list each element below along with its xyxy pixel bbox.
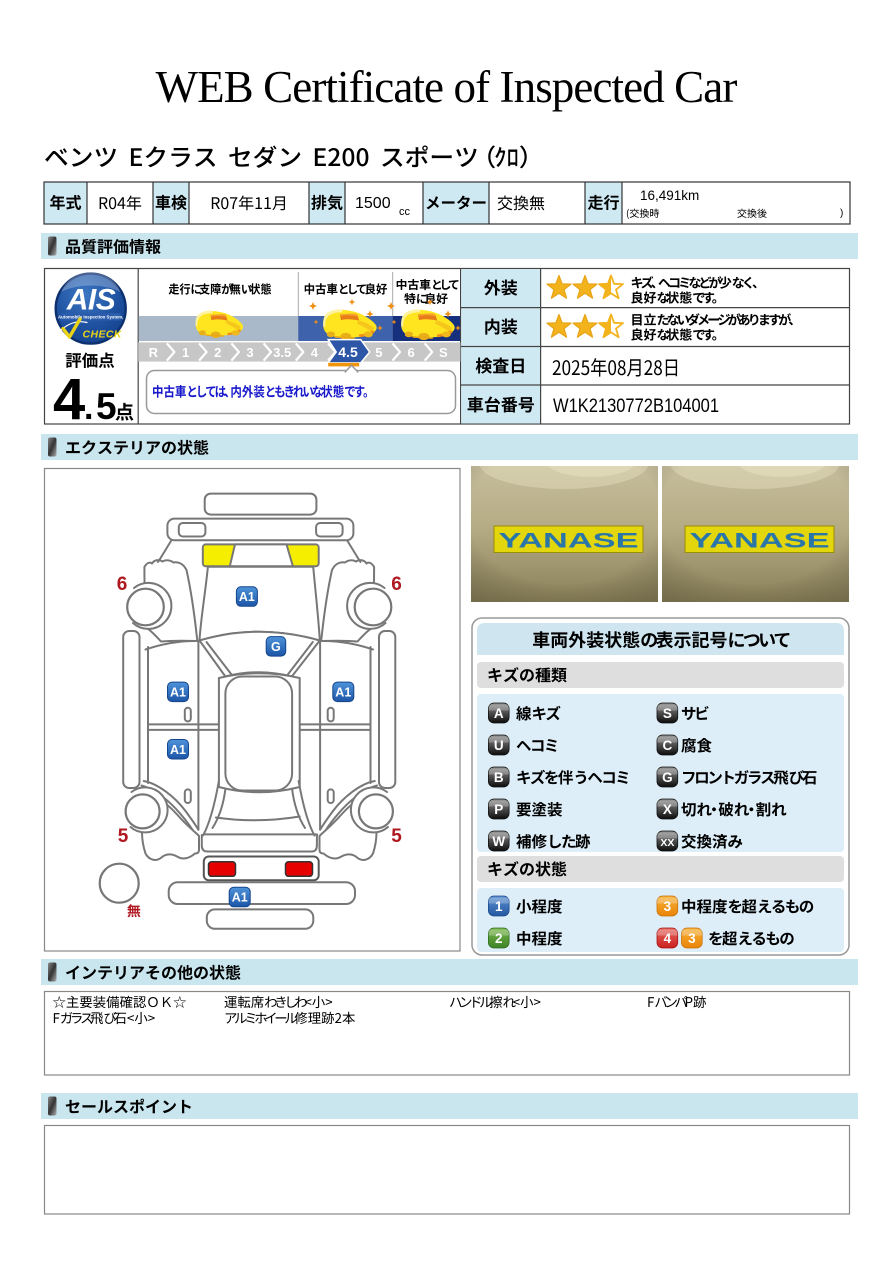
svg-text:XX: XX	[660, 837, 674, 849]
svg-text:5: 5	[391, 826, 402, 847]
svg-text:2: 2	[495, 931, 503, 946]
svg-text:Automobile Inspection System,: Automobile Inspection System,	[58, 315, 123, 320]
svg-text:16,491km: 16,491km	[640, 188, 699, 203]
svg-text:WEB Certificate of Inspected C: WEB Certificate of Inspected Car	[156, 62, 738, 112]
svg-text:cc: cc	[399, 206, 411, 218]
svg-text:YANASE: YANASE	[499, 530, 639, 553]
svg-text:A1: A1	[170, 685, 186, 699]
svg-text:1: 1	[182, 345, 189, 360]
svg-text:6: 6	[407, 345, 414, 360]
svg-text:A1: A1	[232, 891, 248, 905]
svg-text:6: 6	[117, 574, 128, 595]
svg-text:G: G	[662, 770, 673, 785]
svg-text:A1: A1	[170, 743, 186, 757]
svg-text:3.5: 3.5	[273, 345, 291, 360]
svg-text:5: 5	[118, 826, 129, 847]
svg-text:4: 4	[664, 931, 672, 946]
svg-text:3: 3	[664, 899, 672, 914]
svg-text:W: W	[492, 834, 505, 849]
svg-text:S: S	[439, 345, 448, 360]
svg-text:4.5: 4.5	[338, 344, 358, 360]
svg-text:5: 5	[375, 345, 382, 360]
svg-text:B: B	[494, 770, 504, 785]
svg-text:AIS: AIS	[66, 284, 116, 317]
svg-text:3: 3	[688, 931, 696, 946]
svg-text:.: .	[84, 389, 93, 427]
svg-text:4: 4	[53, 367, 85, 432]
svg-text:A: A	[494, 706, 504, 721]
svg-text:W1K2130772B104001: W1K2130772B104001	[553, 396, 719, 417]
svg-text:S: S	[663, 706, 672, 721]
svg-text:4: 4	[311, 345, 319, 360]
svg-text:5: 5	[96, 386, 117, 427]
svg-text:A1: A1	[239, 590, 255, 604]
svg-text:U: U	[494, 738, 504, 753]
svg-text:P: P	[494, 802, 503, 817]
svg-text:G: G	[271, 640, 281, 654]
svg-text:1500: 1500	[355, 195, 391, 212]
svg-text:X: X	[663, 802, 672, 817]
svg-text:YANASE: YANASE	[690, 530, 830, 553]
svg-text:C: C	[663, 738, 673, 753]
svg-text:2: 2	[214, 345, 221, 360]
svg-text:A1: A1	[335, 685, 351, 699]
svg-text:R: R	[149, 345, 159, 360]
svg-text:): )	[840, 208, 843, 219]
svg-text:1: 1	[495, 899, 503, 914]
svg-text:6: 6	[391, 574, 402, 595]
svg-text:CHECK: CHECK	[83, 329, 123, 341]
svg-text:3: 3	[246, 345, 253, 360]
